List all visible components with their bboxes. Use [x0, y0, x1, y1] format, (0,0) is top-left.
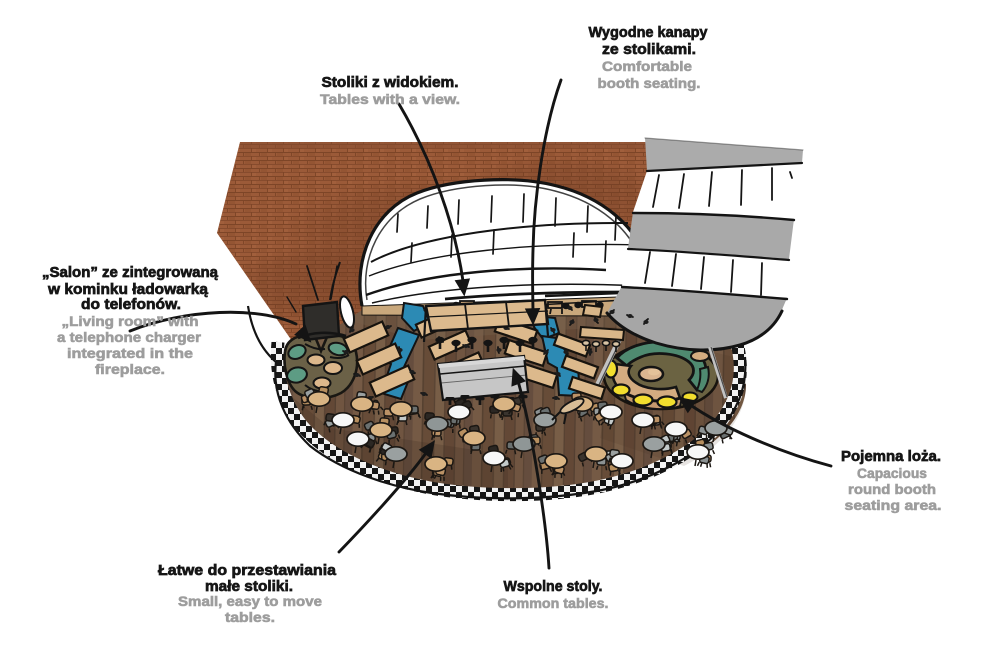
svg-text:Common tables.: Common tables. — [498, 595, 609, 611]
svg-text:seating area.: seating area. — [845, 497, 942, 513]
svg-text:Pojemna loża.: Pojemna loża. — [841, 448, 941, 465]
svg-text:do telefonów.: do telefonów. — [81, 296, 181, 313]
svg-text:„Living room” with: „Living room” with — [62, 313, 199, 329]
svg-text:integrated in the: integrated in the — [67, 345, 193, 361]
svg-text:Wygodne kanapy: Wygodne kanapy — [589, 24, 709, 41]
svg-text:round booth: round booth — [848, 481, 936, 497]
svg-text:Comfortable: Comfortable — [602, 58, 692, 74]
svg-text:Stoliki z widokiem.: Stoliki z widokiem. — [322, 74, 459, 91]
svg-text:ze stolikami.: ze stolikami. — [602, 41, 696, 58]
svg-text:booth seating.: booth seating. — [598, 75, 701, 91]
svg-text:Capacious: Capacious — [857, 465, 927, 481]
svg-text:Tables with a view.: Tables with a view. — [320, 91, 460, 107]
svg-text:tables.: tables. — [225, 609, 275, 625]
svg-text:fireplace.: fireplace. — [95, 361, 165, 377]
svg-text:„Salon” ze zintegrowaną: „Salon” ze zintegrowaną — [42, 264, 219, 281]
svg-text:a telephone charger: a telephone charger — [57, 329, 202, 345]
svg-text:Wspolne stoly.: Wspolne stoly. — [504, 578, 603, 595]
svg-text:Small, easy to move: Small, easy to move — [178, 593, 322, 609]
svg-text:Łatwe do przestawiania: Łatwe do przestawiania — [158, 562, 337, 579]
